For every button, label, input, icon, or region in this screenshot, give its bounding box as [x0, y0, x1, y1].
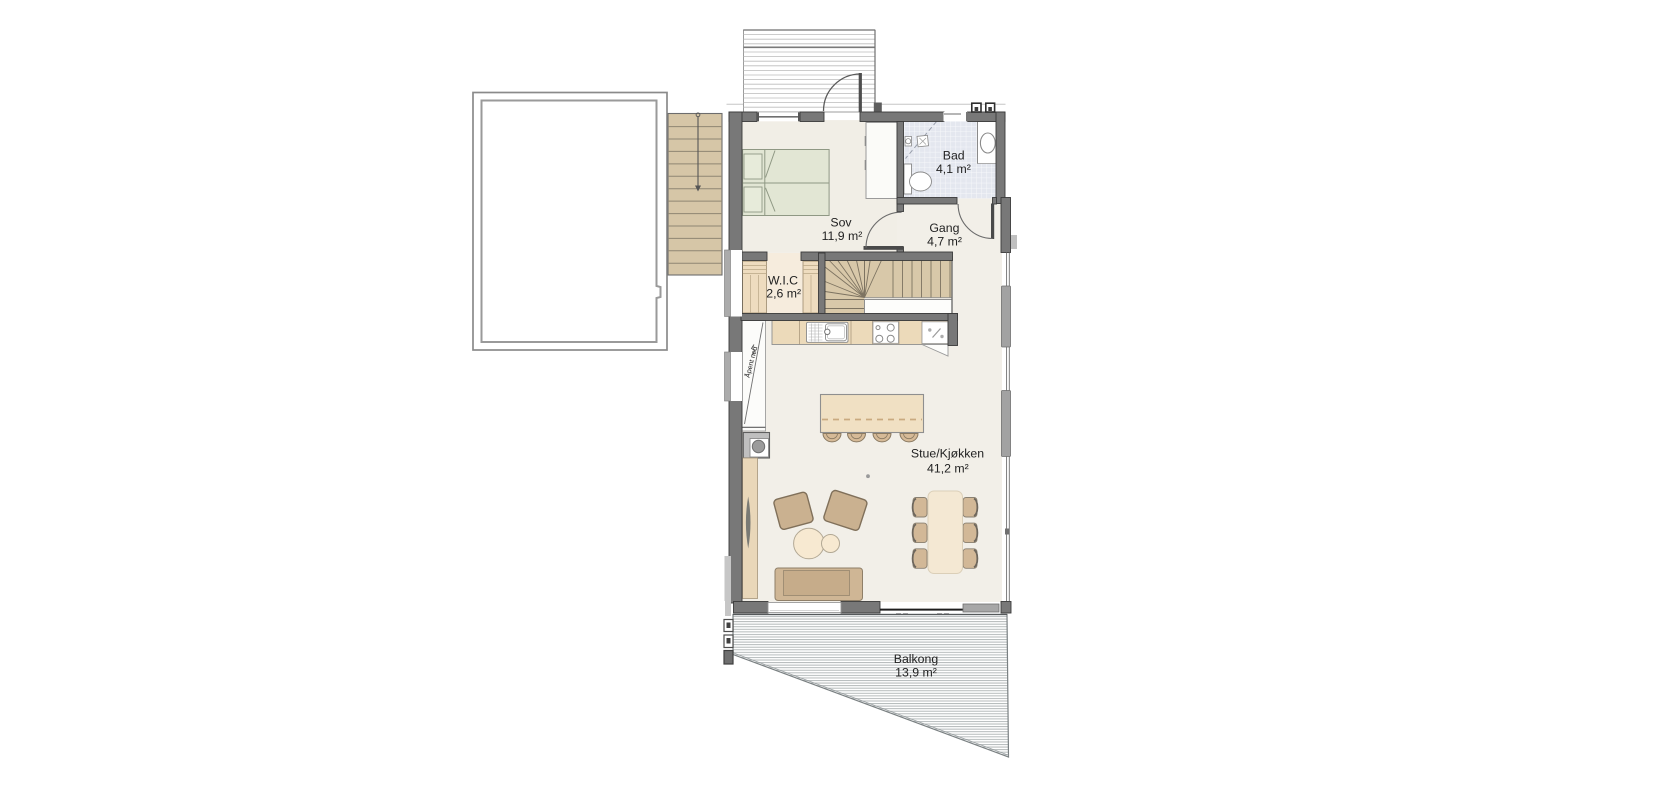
svg-text:Stue/Kjøkken: Stue/Kjøkken — [911, 447, 984, 461]
svg-text:13,9 m²: 13,9 m² — [895, 666, 937, 680]
svg-text:Sov: Sov — [830, 216, 852, 230]
svg-text:Balkong: Balkong — [894, 652, 939, 666]
svg-text:4,7 m²: 4,7 m² — [927, 235, 962, 249]
svg-text:4,1 m²: 4,1 m² — [936, 162, 971, 176]
svg-text:Gang: Gang — [929, 221, 959, 235]
svg-text:2,6 m²: 2,6 m² — [766, 287, 801, 301]
svg-text:W.I.C: W.I.C — [768, 274, 798, 288]
svg-text:11,9 m²: 11,9 m² — [822, 229, 863, 243]
svg-text:Bad: Bad — [943, 149, 965, 163]
svg-text:41,2 m²: 41,2 m² — [927, 461, 969, 475]
